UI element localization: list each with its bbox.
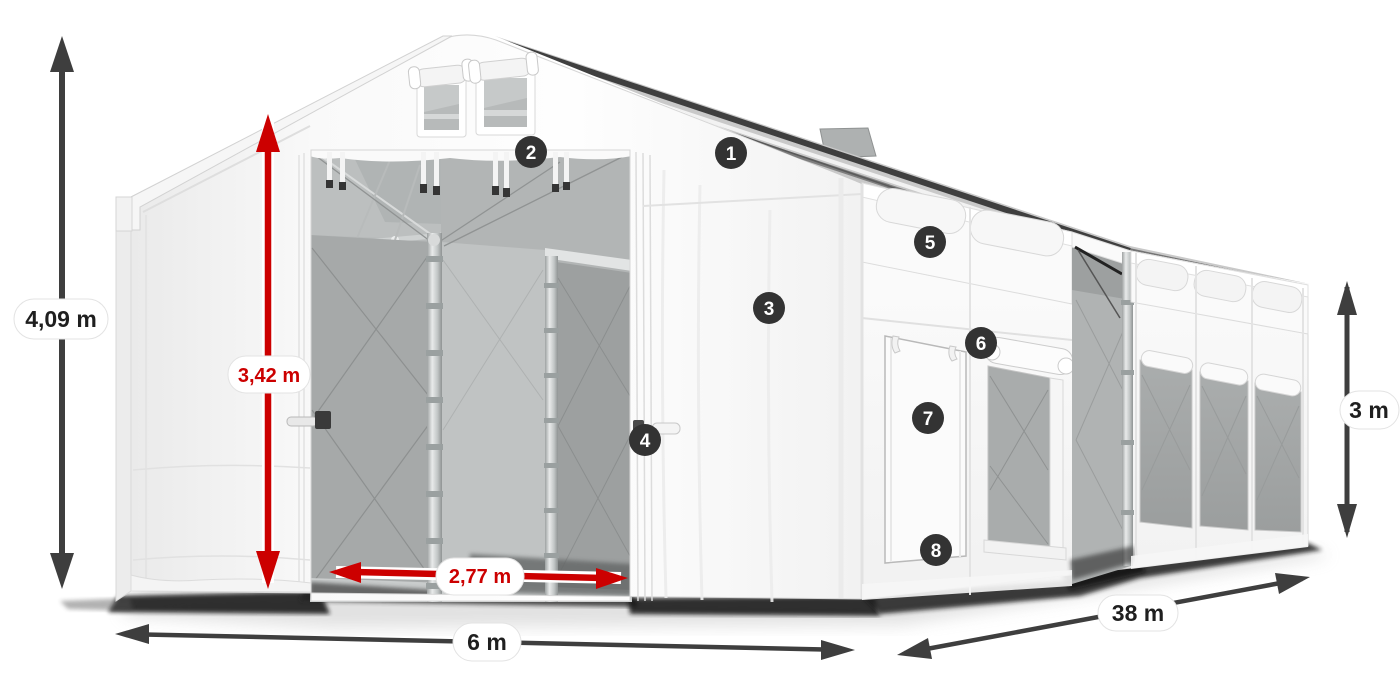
svg-text:1: 1: [726, 144, 737, 165]
svg-text:5: 5: [925, 233, 936, 254]
svg-text:4,09 m: 4,09 m: [25, 306, 97, 332]
svg-text:6 m: 6 m: [467, 629, 507, 655]
svg-text:38 m: 38 m: [1112, 600, 1164, 626]
svg-text:2,77 m: 2,77 m: [449, 566, 511, 588]
svg-text:3,42 m: 3,42 m: [238, 365, 300, 387]
svg-text:6: 6: [976, 334, 987, 355]
svg-text:8: 8: [931, 541, 942, 562]
svg-text:7: 7: [923, 409, 934, 430]
svg-text:4: 4: [640, 431, 651, 452]
svg-text:3: 3: [764, 299, 775, 320]
svg-text:2: 2: [526, 143, 537, 164]
svg-text:3 m: 3 m: [1349, 397, 1389, 423]
